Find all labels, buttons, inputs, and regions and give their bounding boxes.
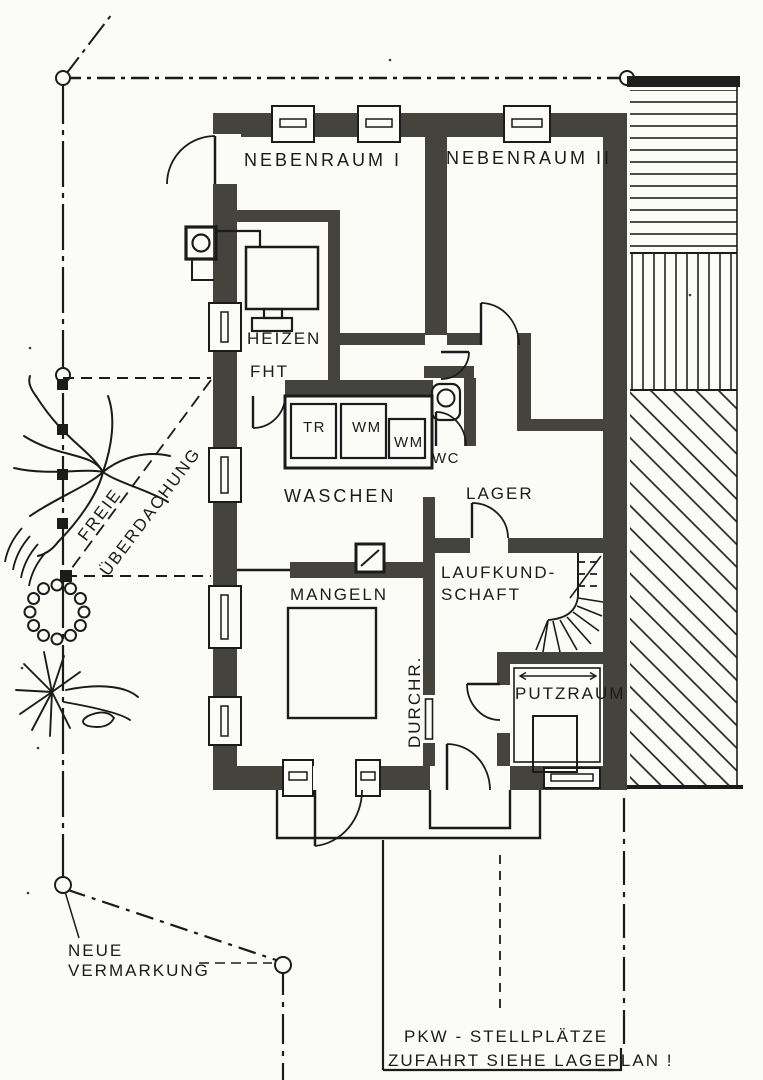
door-wc [436,412,466,446]
door-fht [253,396,285,428]
room-label-putzraum: PUTZRAUM [515,684,625,703]
room-label-laufkund-2: SCHAFT [441,585,521,604]
window [272,106,314,142]
flue-box [356,544,384,572]
hatch-vertical [630,253,737,390]
room-label-mangeln: MANGELN [290,585,388,604]
room-label-durchr: DURCHR. [405,656,424,748]
canopy-post [57,379,68,390]
parking-label-line1: PKW - STELLPLÄTZE [404,1027,608,1046]
parking-area: PKW - STELLPLÄTZE ZUFAHRT SIEHE LAGEPLAN… [383,840,673,1070]
round-bush [25,580,90,645]
parking-label-line2: ZUFAHRT SIEHE LAGEPLAN ! [388,1051,673,1070]
room-label-lager: LAGER [466,484,534,503]
door-putzraum [467,684,500,720]
vermarkung-label-line1: NEUE [68,941,123,960]
room-label-waschen: WASCHEN [284,486,396,506]
floor-plan-svg: FREIE ÜBERDACHUNG [0,0,763,1080]
window [209,586,241,648]
door-opening [430,766,510,790]
mangle-table [288,608,376,718]
interior-doors [253,303,519,720]
door-opening [313,766,356,790]
pass-through-hatch [423,695,435,743]
boundary-marker [56,71,70,85]
canopy-area: FREIE ÜBERDACHUNG [57,378,211,582]
chimney [186,227,216,280]
window [209,303,241,351]
room-label-fht: FHT [250,362,289,381]
canopy-post [57,518,68,529]
room-label-heizen: HEIZEN [247,329,321,348]
window [358,106,400,142]
room-label-laufkund-1: LAUFKUND- [441,563,556,582]
bottom-wall-openings [283,760,600,796]
vermarkung-label-line2: VERMARKUNG [68,961,210,980]
appliance-label-wm1: WM [352,419,382,436]
hatched-strip [627,76,743,787]
door-opening [497,685,510,733]
canopy-post [60,570,72,582]
spiky-shrub [16,652,138,736]
top-edge-bar [627,76,740,87]
room-label-wc: WC [432,450,460,467]
exterior-door-topleft [167,134,241,184]
ground-fan [5,528,46,586]
door-nebenraum2 [481,303,519,345]
appliance-label-wm2: WM [394,434,424,451]
floor-plan-page: FREIE ÜBERDACHUNG [0,0,763,1080]
boundary-marker [275,957,291,973]
survey-mark: NEUE VERMARKUNG [68,941,210,980]
window [209,697,241,745]
boundary-marker [55,877,71,893]
window [356,760,380,796]
appliance-label-tr: TR [303,419,326,436]
window [283,760,313,796]
porch-middle [430,790,510,828]
porch-left [277,790,540,838]
hatch-horizontal [630,90,737,253]
door-lager [472,503,508,538]
room-label-nebenraum1: NEBENRAUM I [244,150,402,170]
window [504,106,550,142]
room-label-nebenraum2: NEBENRAUM II [446,148,612,168]
hatch-diagonal [630,390,737,787]
window [209,448,241,502]
